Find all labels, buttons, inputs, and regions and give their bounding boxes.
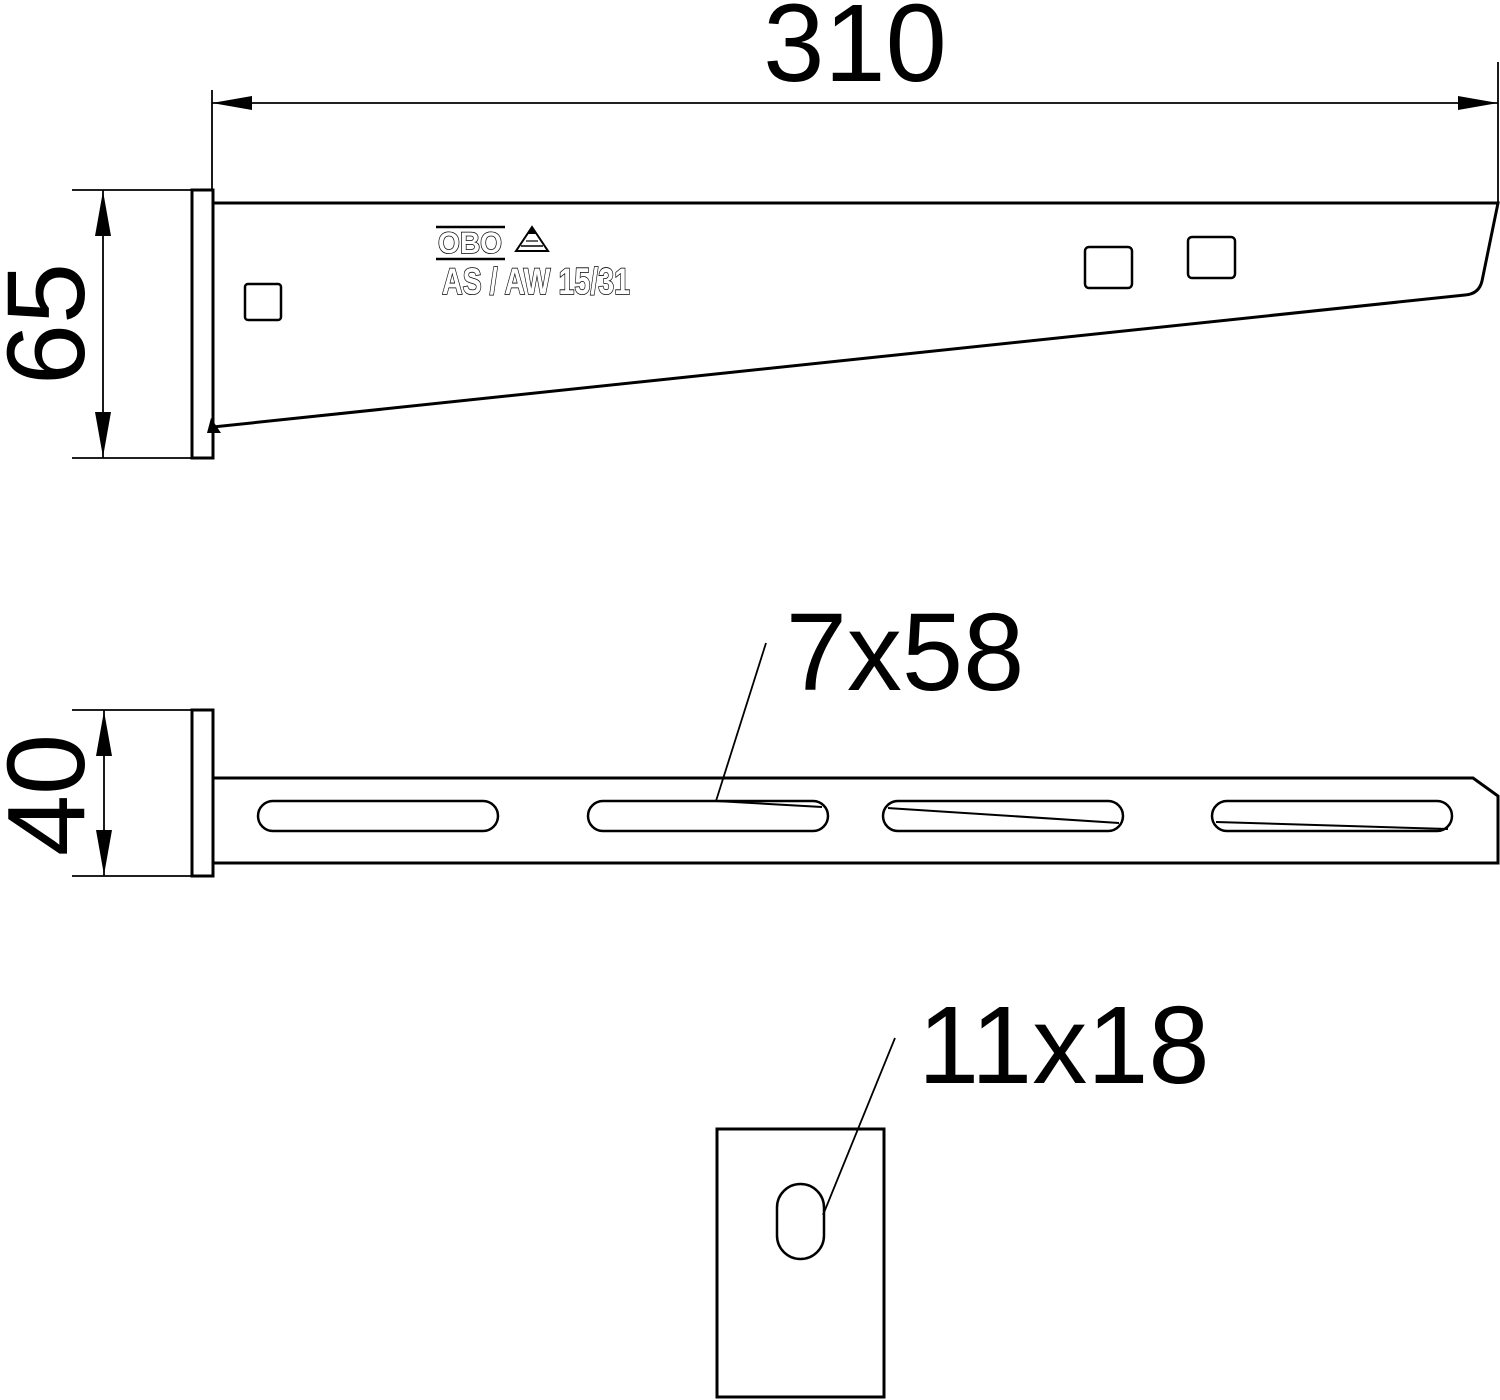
dim-arrow-right <box>1458 96 1498 110</box>
side-view: 310 65 OBO <box>0 0 1498 458</box>
dim-arrow-up <box>95 191 111 236</box>
wall-plate-side <box>192 190 213 458</box>
bracket-arm-plan <box>213 778 1498 863</box>
plan-view: 40 7x58 <box>0 591 1498 876</box>
dimension-40-label: 40 <box>0 734 108 856</box>
dimension-310-label: 310 <box>763 0 947 105</box>
wall-plate-plan <box>192 710 213 876</box>
front-view: 11x18 <box>717 984 1210 1397</box>
bracket-arm-profile <box>213 203 1498 427</box>
technical-drawing-page: 310 65 OBO <box>0 0 1500 1400</box>
slot-size-label: 7x58 <box>786 591 1025 714</box>
obo-logo-text: OBO <box>438 227 502 260</box>
dim-arrow-left <box>212 96 252 110</box>
dim-arrow-down <box>95 412 111 457</box>
bracket-drawing: 310 65 OBO <box>0 0 1500 1400</box>
wall-plate-front <box>717 1129 884 1397</box>
dimension-65-label: 65 <box>0 263 108 385</box>
product-code-text: AS / AW 15/31 <box>442 261 630 302</box>
hole-size-label: 11x18 <box>918 984 1210 1107</box>
